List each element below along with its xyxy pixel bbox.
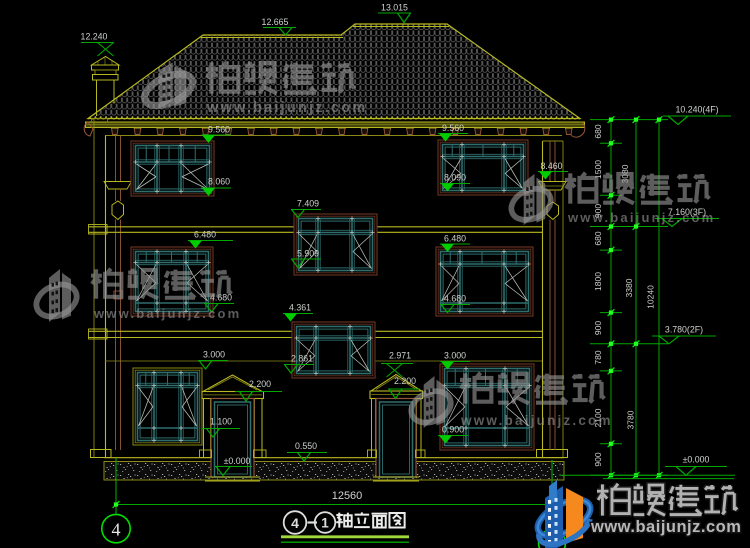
svg-text:12.665: 12.665 [262,17,289,27]
svg-text:3.000: 3.000 [444,351,466,361]
svg-text:www.baijunjz.com: www.baijunjz.com [460,413,613,428]
svg-text:13.015: 13.015 [381,3,408,13]
svg-text:10240: 10240 [646,285,656,309]
svg-text:0.550: 0.550 [295,441,317,451]
svg-text:3380: 3380 [624,278,634,297]
svg-text:680: 680 [593,124,603,138]
svg-text:9.560: 9.560 [208,125,230,135]
svg-text:2.200: 2.200 [394,376,416,386]
svg-text:www.baijunjz.com: www.baijunjz.com [567,210,715,225]
svg-text:1800: 1800 [593,272,603,291]
svg-text:3.780(2F): 3.780(2F) [665,325,703,335]
svg-text:1.100: 1.100 [210,417,232,427]
svg-text:9.560: 9.560 [442,123,464,133]
svg-text:www.baijunjz.com: www.baijunjz.com [590,518,741,536]
svg-text:680: 680 [593,231,603,245]
svg-text:8.090: 8.090 [444,173,466,183]
svg-text:900: 900 [593,321,603,335]
svg-text:www.baijunjz.com: www.baijunjz.com [93,306,241,321]
svg-text:7.409: 7.409 [297,199,319,209]
svg-text:6.480: 6.480 [194,230,216,240]
svg-text:900: 900 [593,452,603,466]
svg-text:10.240(4F): 10.240(4F) [675,105,718,115]
svg-text:4.680: 4.680 [444,294,466,304]
svg-text:1: 1 [321,516,329,531]
svg-text:780: 780 [593,350,603,364]
svg-text:www.baijunjz.com: www.baijunjz.com [206,100,367,116]
svg-text:8.060: 8.060 [208,177,230,187]
svg-text:12560: 12560 [332,490,363,502]
svg-text:3780: 3780 [626,410,636,429]
svg-text:6.480: 6.480 [444,234,466,244]
svg-text:2.971: 2.971 [389,351,411,361]
svg-text:±0.000: ±0.000 [224,456,251,466]
svg-text:8.460: 8.460 [540,161,562,171]
svg-text:5.909: 5.909 [297,249,319,259]
svg-text:2.200: 2.200 [249,379,271,389]
svg-text:4: 4 [112,520,121,540]
svg-text:2.861: 2.861 [291,354,313,364]
svg-text:12.240: 12.240 [81,32,108,42]
svg-text:±0.000: ±0.000 [683,455,710,465]
svg-text:3.000: 3.000 [203,350,225,360]
svg-text:4.361: 4.361 [289,303,311,313]
svg-text:4: 4 [291,515,299,531]
